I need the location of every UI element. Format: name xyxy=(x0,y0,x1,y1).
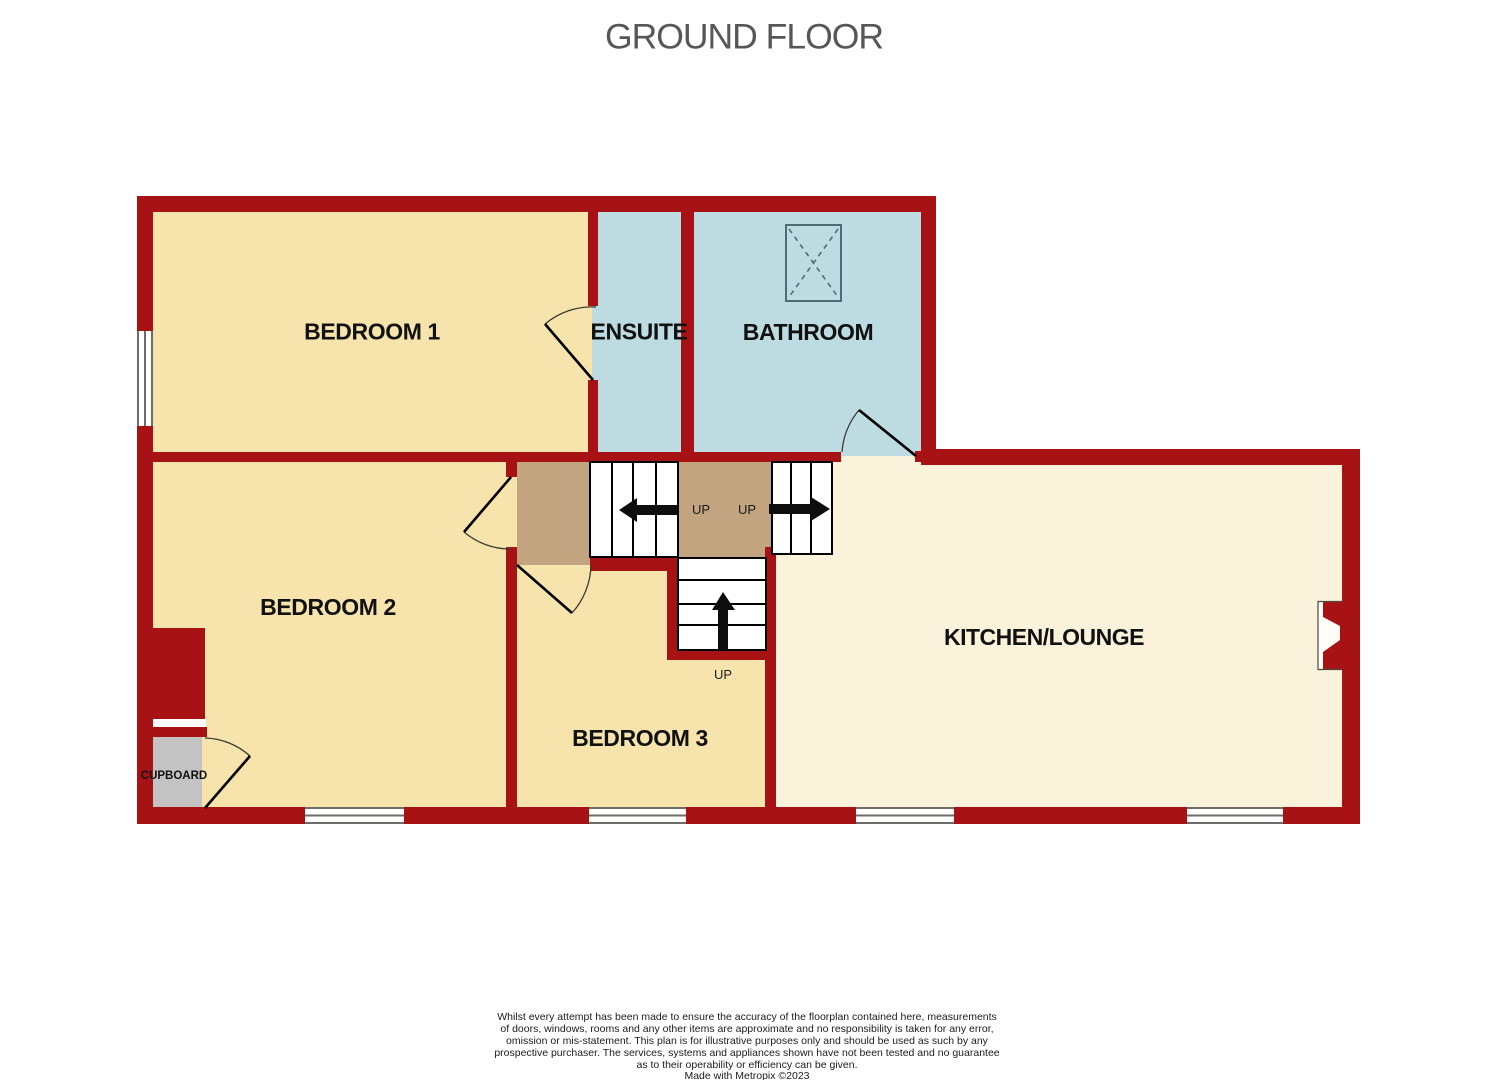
svg-text:UP: UP xyxy=(692,502,710,517)
svg-text:omission or mis-statement. Thi: omission or mis-statement. This plan is … xyxy=(506,1035,989,1047)
svg-text:Whilst every attempt has been: Whilst every attempt has been made to en… xyxy=(497,1011,997,1023)
svg-text:BEDROOM 1: BEDROOM 1 xyxy=(304,319,440,345)
svg-text:of doors, windows, rooms and a: of doors, windows, rooms and any other i… xyxy=(500,1023,993,1035)
svg-text:CUPBOARD: CUPBOARD xyxy=(141,770,207,782)
svg-text:prospective purchaser. The ser: prospective purchaser. The services, sys… xyxy=(494,1047,999,1059)
svg-text:KITCHEN/LOUNGE: KITCHEN/LOUNGE xyxy=(944,624,1144,650)
svg-text:BEDROOM 2: BEDROOM 2 xyxy=(260,594,396,620)
svg-text:UP: UP xyxy=(738,502,756,517)
svg-text:BATHROOM: BATHROOM xyxy=(743,319,874,345)
svg-text:BEDROOM 3: BEDROOM 3 xyxy=(572,725,708,751)
svg-text:Made with Metropix ©2023: Made with Metropix ©2023 xyxy=(684,1070,809,1080)
svg-text:ENSUITE: ENSUITE xyxy=(591,319,688,345)
svg-text:UP: UP xyxy=(714,667,732,682)
svg-text:GROUND FLOOR: GROUND FLOOR xyxy=(605,17,883,57)
